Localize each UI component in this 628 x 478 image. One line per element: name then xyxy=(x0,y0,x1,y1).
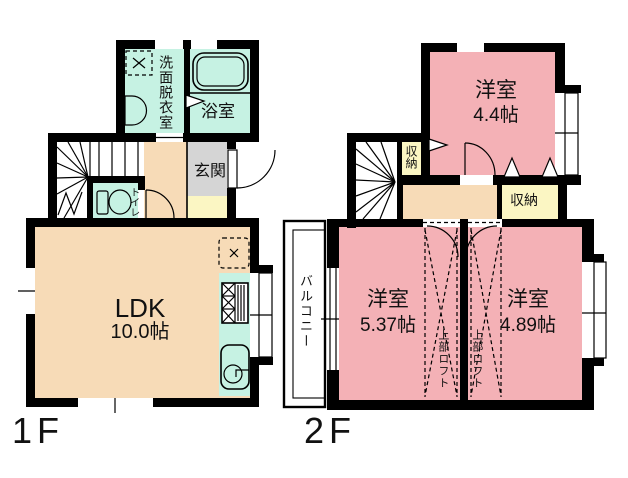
entrance-step-floor xyxy=(187,196,227,220)
bedroom-a-top-window xyxy=(457,43,484,52)
entrance-label: 玄関 xyxy=(194,163,226,180)
bedroom-c-floor xyxy=(468,227,582,400)
ldk-size-label: 10.0帖 xyxy=(88,322,192,344)
floor-1-tag: 1F xyxy=(12,412,64,451)
bedroom-a-label: 洋室 xyxy=(444,80,548,103)
bedroom-c-right-window xyxy=(582,262,594,358)
front-door xyxy=(228,150,275,188)
closet-upper-label: 収納 xyxy=(404,145,417,169)
bedroom-a-size-label: 4.4帖 xyxy=(444,106,548,127)
stove-icon xyxy=(222,283,248,323)
bedroom-a-right-window xyxy=(555,93,565,175)
bedroom-c-size-label: 4.89帖 xyxy=(476,316,580,337)
stairs-2f xyxy=(356,142,395,219)
floor-2-tag: 2F xyxy=(304,412,356,451)
loft-c-label: 上部ロフト xyxy=(470,329,482,389)
toilet-label: トイレ xyxy=(127,187,138,217)
loft-b-label: 上部ロフト xyxy=(436,329,448,389)
washroom-floor xyxy=(125,49,184,133)
bedroom-a-door-opening xyxy=(460,175,493,185)
hall1-floor xyxy=(144,142,187,220)
closet-lower-label: 収納 xyxy=(510,193,538,208)
floor-plan-drawing xyxy=(0,0,628,478)
washroom-label: 洗面脱衣室 xyxy=(158,55,173,130)
balcony-label: バルコニー xyxy=(298,274,312,349)
bathroom-window xyxy=(191,40,217,49)
hall2-floor xyxy=(403,185,497,220)
floor-plan: 洗面脱衣室 浴室 玄関 トイレ LDK 10.0帖 1F 2F 洋室 4.4帖 … xyxy=(0,0,628,478)
bedroom-c-label: 洋室 xyxy=(476,289,580,312)
bedroom-b-label: 洋室 xyxy=(336,289,440,312)
ldk-label: LDK xyxy=(88,294,192,322)
washroom-window xyxy=(155,40,183,49)
bedroom-b-size-label: 5.37帖 xyxy=(336,316,440,337)
bathroom-label: 浴室 xyxy=(201,103,235,121)
